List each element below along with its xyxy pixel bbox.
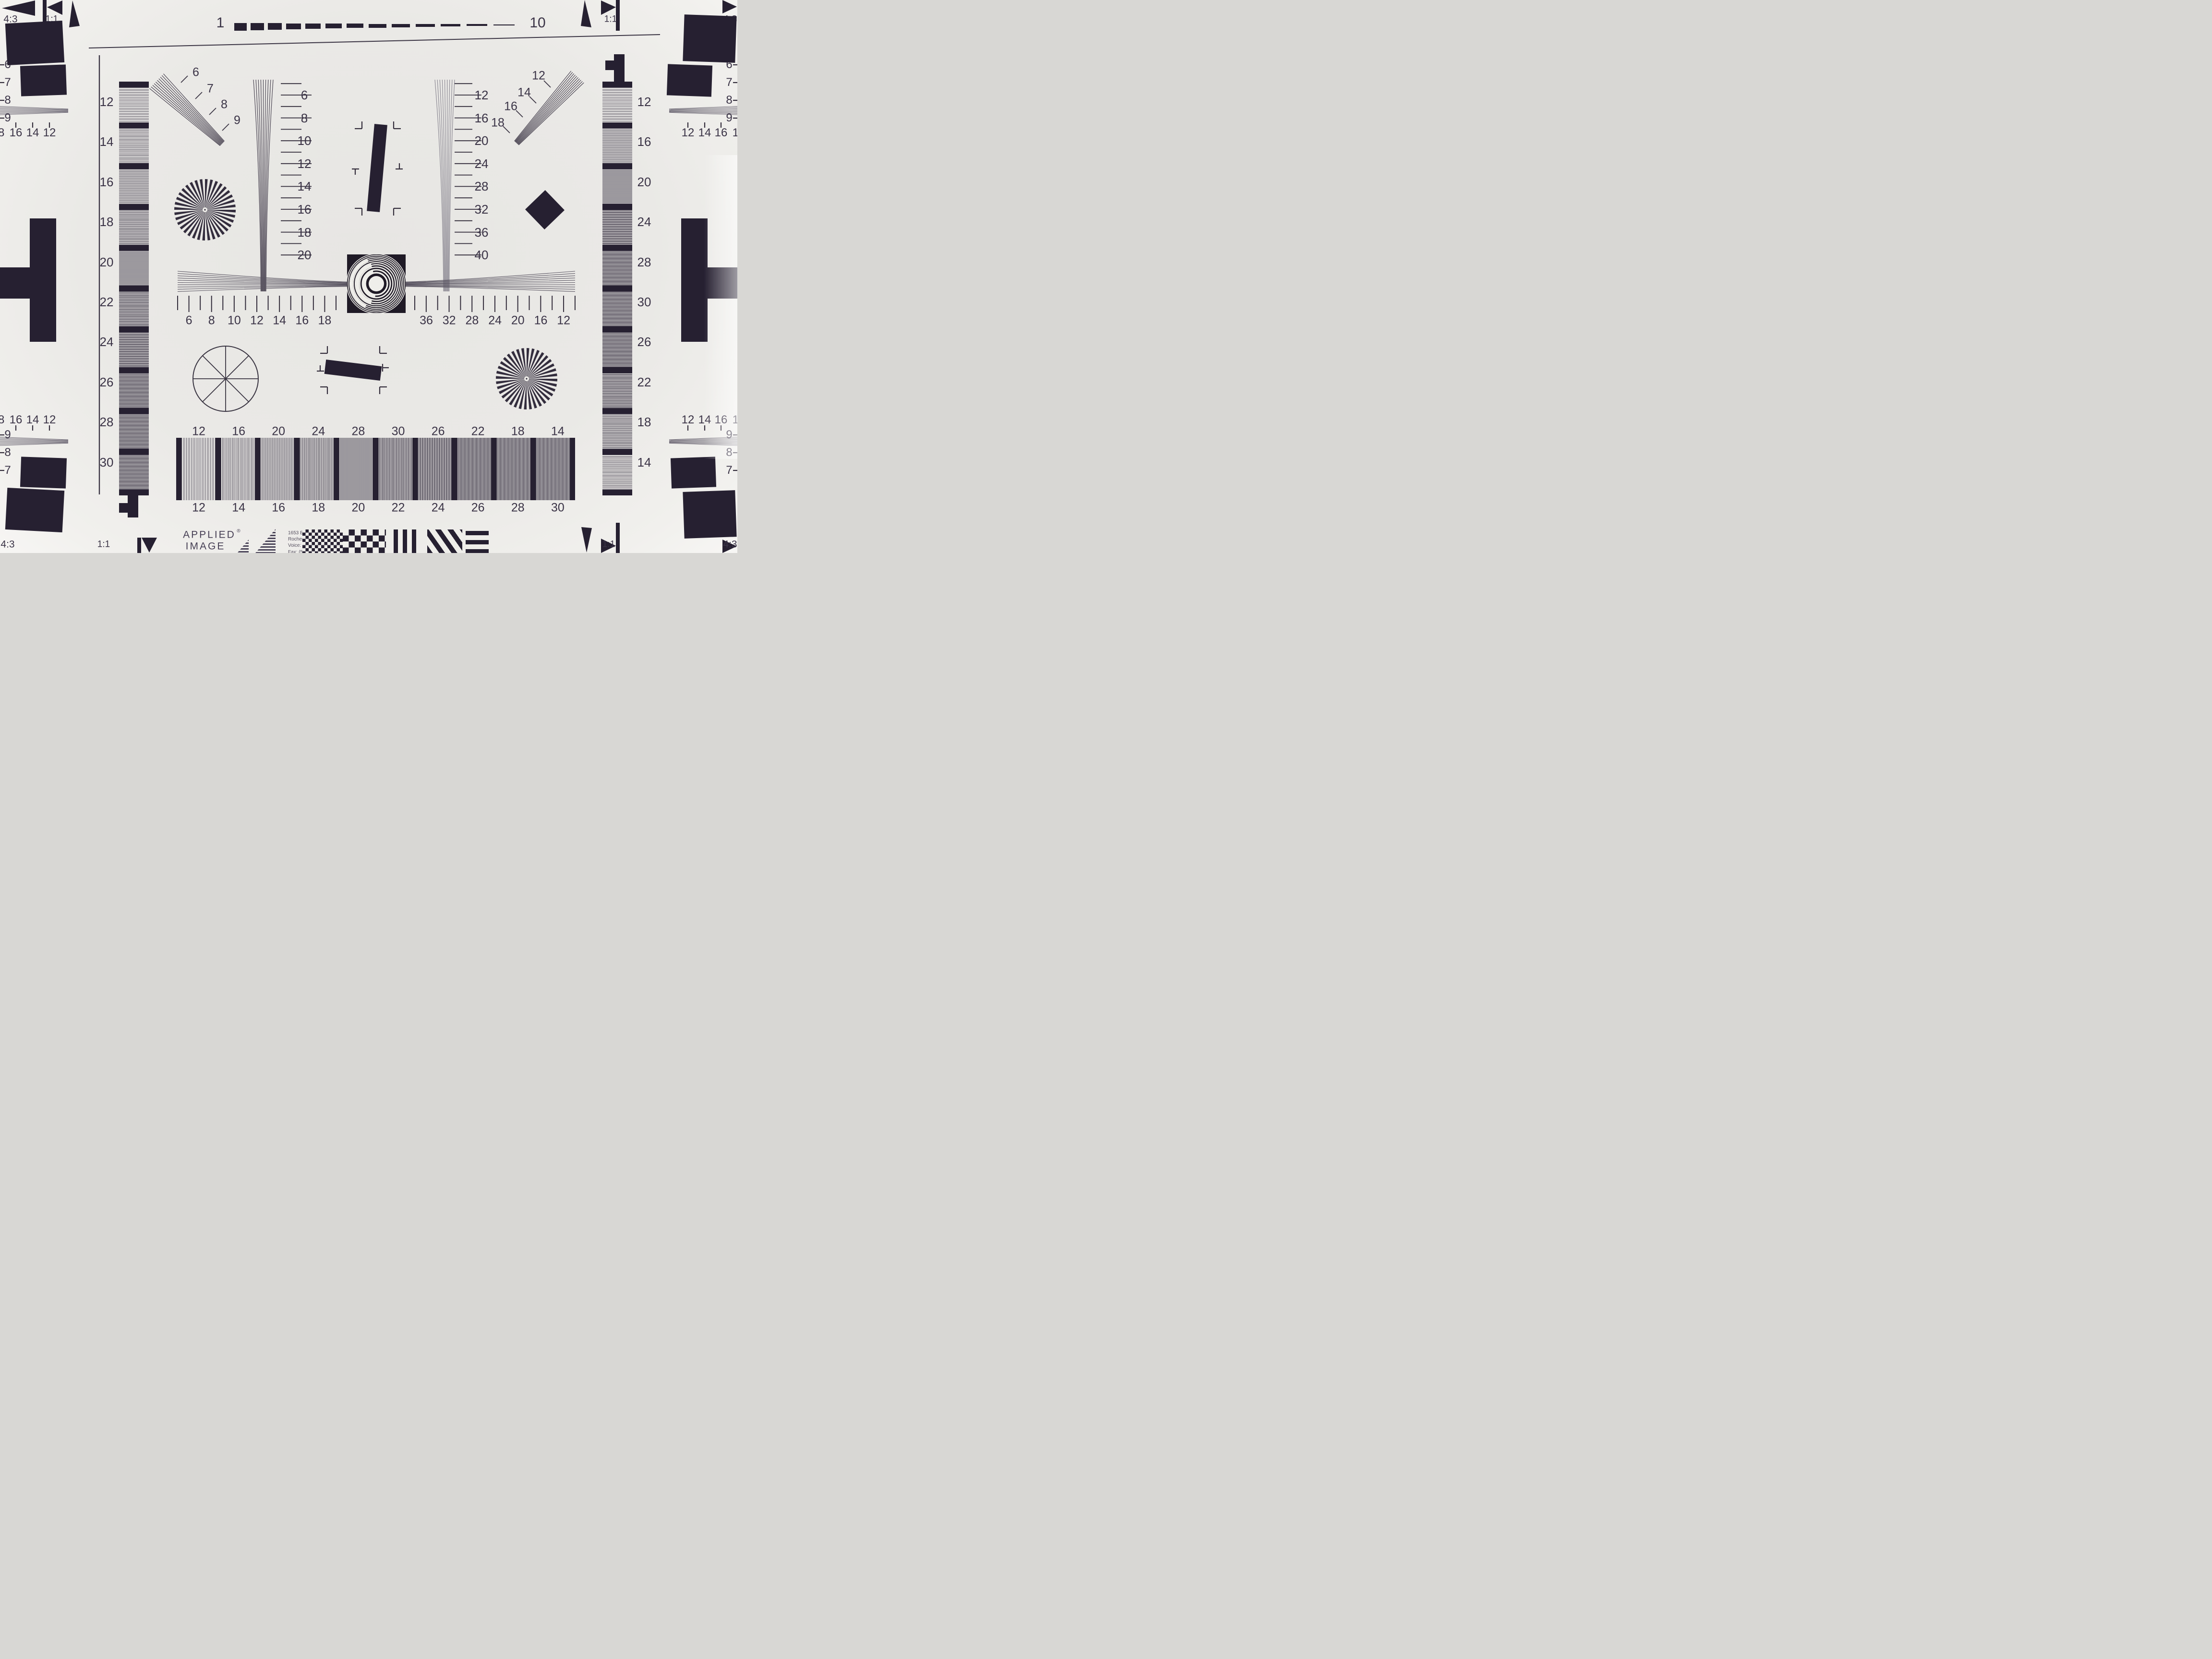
ring-center bbox=[369, 276, 384, 291]
strip-cell bbox=[602, 87, 632, 122]
h-scale-right-label: 12 bbox=[557, 315, 570, 327]
strip-cell bbox=[119, 373, 149, 408]
strip-divider bbox=[334, 438, 339, 500]
strip-cell bbox=[602, 251, 632, 286]
strip-divider bbox=[294, 438, 300, 500]
bottom-wedge-bottom-label: 24 bbox=[432, 502, 445, 514]
coarse-checkerboard-pattern bbox=[343, 529, 386, 553]
right-wedge-label: 12 bbox=[475, 89, 489, 101]
strip-cell bbox=[602, 291, 632, 326]
left-strip-label: 26 bbox=[100, 376, 114, 388]
edge-label: 8 bbox=[4, 447, 11, 458]
left-strip-label: 24 bbox=[100, 336, 114, 348]
right-strip-label: 14 bbox=[637, 456, 651, 469]
ruler-dash bbox=[251, 23, 264, 30]
strip-divider bbox=[119, 367, 149, 373]
strip-cell bbox=[602, 373, 632, 408]
left-arrow-icon bbox=[47, 0, 62, 15]
diagonal-bars-pattern bbox=[427, 529, 462, 553]
edge-label: 18 bbox=[0, 414, 4, 426]
right-grayscale-strip bbox=[602, 82, 632, 495]
right-wedge-label: 32 bbox=[475, 203, 489, 216]
left-t-shape-arm bbox=[0, 267, 30, 299]
ruler-dash bbox=[268, 23, 282, 30]
strip-cell bbox=[602, 210, 632, 245]
upper-right-fan-wedge bbox=[515, 72, 573, 142]
strip-cell bbox=[339, 438, 373, 500]
ruler-end-label: 10 bbox=[529, 16, 545, 30]
h-scale-right-label: 28 bbox=[465, 315, 479, 327]
left-strip-label: 22 bbox=[100, 296, 114, 308]
edge-label: 14 bbox=[26, 414, 39, 426]
ruler-dash bbox=[441, 24, 460, 26]
edge-label: 7 bbox=[726, 465, 732, 476]
ruler-dash bbox=[234, 23, 247, 31]
left-strip-label: 30 bbox=[100, 456, 114, 469]
strip-cell bbox=[418, 438, 452, 500]
bottom-wedge-top-label: 18 bbox=[511, 426, 525, 438]
strip-divider bbox=[119, 245, 149, 251]
right-strip-label: 12 bbox=[637, 96, 651, 108]
down-triangle-icon bbox=[142, 538, 157, 553]
fan-tick bbox=[195, 92, 202, 99]
bottom-grayscale-strip bbox=[176, 438, 575, 500]
ur-fan-label: 18 bbox=[491, 117, 505, 129]
edge-label: 14 bbox=[26, 127, 39, 139]
right-t-shape-arm bbox=[707, 267, 737, 299]
h-scale-left-label: 18 bbox=[318, 315, 332, 327]
strip-divider bbox=[119, 204, 149, 210]
strip-divider bbox=[491, 438, 496, 500]
strip-divider bbox=[119, 286, 149, 291]
edge-label: 18 bbox=[733, 414, 737, 426]
strip-cell bbox=[602, 332, 632, 367]
lower-right-starburst bbox=[524, 379, 527, 409]
h-scale-left-label: 6 bbox=[186, 315, 192, 327]
edge-label: 18 bbox=[733, 127, 737, 139]
up-triangle-icon bbox=[581, 0, 591, 27]
bottom-wedge-top-label: 28 bbox=[351, 426, 365, 438]
ur-fan-label: 16 bbox=[504, 101, 517, 113]
edge-label: 12 bbox=[682, 127, 695, 139]
marker-bar bbox=[137, 538, 141, 553]
strip-divider bbox=[119, 449, 149, 455]
right-arrow-icon bbox=[722, 0, 737, 13]
bottom-wedge-bottom-label: 30 bbox=[551, 502, 565, 514]
strip-divider bbox=[570, 438, 575, 500]
right-strip-label: 18 bbox=[637, 416, 651, 428]
edge-label: 9 bbox=[726, 429, 732, 441]
strip-divider bbox=[119, 490, 149, 495]
strip-divider bbox=[602, 204, 632, 210]
ul-fan-label: 7 bbox=[207, 83, 214, 95]
marker-bar bbox=[616, 523, 620, 553]
right-strip-label: 22 bbox=[637, 376, 651, 388]
strip-cell bbox=[119, 128, 149, 163]
vertical-bars-pattern bbox=[394, 529, 417, 553]
edge-label: 16 bbox=[10, 414, 23, 426]
down-triangle-icon bbox=[581, 527, 592, 553]
right-wedge-label: 24 bbox=[475, 157, 489, 170]
square-label-bottom-right: 1:1 bbox=[602, 540, 615, 549]
square-label-top-right: 1:1 bbox=[604, 15, 617, 24]
ruler-dash bbox=[416, 24, 435, 27]
strip-cell bbox=[119, 210, 149, 245]
ruler-start-label: 1 bbox=[216, 16, 225, 30]
strip-divider bbox=[216, 438, 221, 500]
edge-label: 12 bbox=[43, 414, 56, 426]
strip-divider bbox=[452, 438, 457, 500]
right-wedge-label: 20 bbox=[475, 134, 489, 147]
strip-divider bbox=[119, 163, 149, 169]
strip-cell bbox=[119, 291, 149, 326]
ul-fan-label: 6 bbox=[192, 67, 199, 79]
right-strip-label: 16 bbox=[637, 135, 651, 148]
right-wedge-label: 36 bbox=[475, 226, 489, 239]
edge-label: 16 bbox=[715, 414, 728, 426]
bottom-wedge-bottom-label: 14 bbox=[232, 502, 245, 514]
edge-label: 8 bbox=[726, 447, 732, 458]
ur-fan-label: 12 bbox=[532, 70, 545, 82]
lower-right-starburst-dot bbox=[526, 378, 527, 379]
strip-divider bbox=[602, 245, 632, 251]
ruler-dash bbox=[347, 24, 363, 28]
left-strip-label: 12 bbox=[100, 96, 114, 108]
h-scale-right-label: 24 bbox=[488, 315, 502, 327]
ruler-dash bbox=[325, 24, 342, 28]
bottom-wedge-top-label: 14 bbox=[551, 426, 565, 438]
bottom-wedge-bottom-label: 16 bbox=[272, 502, 285, 514]
strip-cell bbox=[119, 455, 149, 490]
edge-hatch bbox=[0, 110, 68, 110]
strip-divider bbox=[119, 326, 149, 332]
right-strip-label: 24 bbox=[637, 216, 651, 228]
upper-left-fan-wedge bbox=[163, 74, 224, 142]
edge-label: 12 bbox=[43, 127, 56, 139]
corner-square-bottom-left bbox=[5, 488, 64, 532]
edge-label: 14 bbox=[698, 414, 711, 426]
strip-divider bbox=[602, 367, 632, 373]
corner-square-bottom-right bbox=[683, 490, 736, 539]
edge-hatch bbox=[669, 110, 737, 110]
upper-right-fan-wedge bbox=[516, 73, 574, 142]
bottom-wedge-bottom-label: 26 bbox=[471, 502, 485, 514]
strip-cell bbox=[221, 438, 255, 500]
strip-divider bbox=[373, 438, 378, 500]
upper-left-starburst bbox=[202, 210, 205, 240]
h-scale-right-label: 20 bbox=[511, 315, 525, 327]
strip-cell bbox=[378, 438, 412, 500]
bottom-wedge-bottom-label: 12 bbox=[192, 502, 205, 514]
center-wedge-label: 14 bbox=[298, 180, 312, 192]
bottom-wedge-top-label: 22 bbox=[471, 426, 485, 438]
center-wedge-label: 8 bbox=[301, 112, 308, 124]
ratio-label-bottom-left: 4:3 bbox=[0, 540, 14, 550]
horizontal-wedge-line bbox=[406, 271, 575, 282]
strip-cell bbox=[119, 414, 149, 449]
h-scale-right-label: 36 bbox=[420, 315, 433, 327]
h-scale-left-label: 14 bbox=[273, 315, 286, 327]
upper-left-starburst bbox=[205, 179, 208, 210]
upper-right-fan-wedge bbox=[516, 75, 576, 143]
ul-fan-label: 8 bbox=[221, 99, 228, 111]
strip-cell bbox=[260, 438, 294, 500]
edge-label: 16 bbox=[10, 127, 23, 139]
strip-tab-arm bbox=[119, 503, 128, 513]
strip-divider bbox=[119, 82, 149, 87]
strip-divider bbox=[119, 408, 149, 414]
edge-label: 7 bbox=[4, 465, 11, 476]
h-scale-left-label: 16 bbox=[295, 315, 309, 327]
strip-divider bbox=[602, 163, 632, 169]
bottom-wedge-top-label: 12 bbox=[192, 426, 205, 438]
left-strip-label: 16 bbox=[100, 176, 114, 188]
center-wedge-label: 16 bbox=[298, 203, 312, 216]
h-scale-left-label: 8 bbox=[208, 315, 215, 327]
bottom-wedge-top-label: 16 bbox=[232, 426, 245, 438]
ruler-dash bbox=[392, 24, 410, 27]
upper-left-fan-wedge bbox=[150, 88, 220, 145]
strip-divider bbox=[602, 82, 632, 87]
fan-tick bbox=[181, 76, 188, 83]
center-wedge-label: 18 bbox=[298, 226, 312, 239]
bottom-wedge-bottom-label: 18 bbox=[312, 502, 325, 514]
logo-word-image: IMAGE bbox=[186, 541, 226, 552]
strip-cell bbox=[119, 169, 149, 204]
strip-cell bbox=[119, 87, 149, 122]
edge-label: 9 bbox=[4, 112, 11, 124]
logo-word-applied: APPLIED bbox=[183, 530, 236, 540]
strip-cell bbox=[496, 438, 530, 500]
strip-divider bbox=[602, 326, 632, 332]
bottom-wedge-top-label: 30 bbox=[392, 426, 405, 438]
strip-cell bbox=[536, 438, 570, 500]
strip-tab-arm bbox=[605, 60, 614, 70]
edge-square bbox=[671, 457, 716, 488]
strip-tab bbox=[128, 495, 138, 517]
right-wedge-label: 28 bbox=[475, 180, 489, 192]
strip-cell bbox=[602, 128, 632, 163]
edge-label: 8 bbox=[4, 95, 11, 106]
right-strip-label: 28 bbox=[637, 256, 651, 268]
square-label-bottom-left: 1:1 bbox=[97, 540, 110, 549]
edge-label: 9 bbox=[726, 112, 732, 124]
edge-square bbox=[20, 457, 67, 488]
ruler-dash bbox=[493, 24, 515, 25]
left-strip-label: 20 bbox=[100, 256, 114, 268]
registered-mark-icon: ® bbox=[237, 529, 240, 534]
strip-divider bbox=[602, 122, 632, 128]
fan-tick bbox=[222, 124, 229, 131]
strip-divider bbox=[602, 408, 632, 414]
lower-right-starburst bbox=[527, 379, 557, 382]
strip-cell bbox=[119, 332, 149, 367]
center-wedge-label: 12 bbox=[298, 157, 312, 170]
lower-right-starburst bbox=[527, 348, 529, 379]
ratio-label-bottom-right: 4:3 bbox=[723, 540, 737, 550]
diagonal-reference-line bbox=[89, 35, 660, 48]
left-grayscale-strip bbox=[119, 82, 149, 495]
bottom-wedge-top-label: 26 bbox=[432, 426, 445, 438]
center-wedge-label: 20 bbox=[298, 249, 312, 261]
strip-tab bbox=[614, 54, 625, 82]
resolution-test-chart: 4:3 1:1 1:1 4:3 4:3 1:1 1:1 4:3 1 10 121… bbox=[0, 0, 737, 553]
edge-label: 7 bbox=[4, 77, 11, 88]
bottom-wedge-bottom-label: 22 bbox=[392, 502, 405, 514]
ruler-dash bbox=[369, 24, 386, 28]
horizontal-bars-pattern bbox=[466, 529, 489, 553]
bottom-wedge-bottom-label: 28 bbox=[511, 502, 525, 514]
right-wedge-label: 16 bbox=[475, 112, 489, 124]
ul-fan-label: 9 bbox=[234, 115, 240, 127]
upper-left-fan-wedge bbox=[151, 87, 221, 145]
up-triangle-icon bbox=[69, 0, 80, 27]
upper-left-starburst bbox=[174, 207, 205, 210]
left-strip-label: 28 bbox=[100, 416, 114, 428]
strip-divider bbox=[602, 490, 632, 495]
center-wedge-label: 10 bbox=[298, 134, 312, 147]
upper-left-starburst-dot bbox=[204, 209, 205, 210]
right-strip-label: 30 bbox=[637, 296, 651, 308]
strip-cell bbox=[300, 438, 334, 500]
edge-label: 16 bbox=[715, 127, 728, 139]
ruler-dash bbox=[467, 24, 487, 25]
right-t-shape-vertical bbox=[681, 218, 708, 342]
strip-divider bbox=[602, 449, 632, 455]
edge-label: 9 bbox=[4, 429, 11, 441]
right-wedge-label: 40 bbox=[475, 249, 489, 261]
center-wedge-label: 6 bbox=[301, 89, 308, 101]
left-strip-label: 18 bbox=[100, 216, 114, 228]
h-scale-right-label: 32 bbox=[443, 315, 456, 327]
left-strip-label: 14 bbox=[100, 135, 114, 148]
edge-label: 7 bbox=[726, 77, 732, 88]
strip-cell bbox=[602, 169, 632, 204]
h-scale-left-label: 12 bbox=[250, 315, 264, 327]
corner-square-top-right bbox=[683, 14, 736, 63]
corner-square-top-left bbox=[5, 21, 64, 65]
strip-divider bbox=[255, 438, 260, 500]
left-t-shape-vertical bbox=[30, 218, 56, 342]
strip-divider bbox=[119, 122, 149, 128]
funnel-wedge-line bbox=[449, 80, 455, 291]
strip-divider bbox=[530, 438, 536, 500]
bottom-wedge-bottom-label: 20 bbox=[351, 502, 365, 514]
h-scale-left-label: 10 bbox=[228, 315, 241, 327]
strip-divider bbox=[412, 438, 418, 500]
strip-cell bbox=[119, 251, 149, 286]
edge-square bbox=[20, 64, 67, 96]
h-scale-right-label: 16 bbox=[534, 315, 548, 327]
right-strip-label: 26 bbox=[637, 336, 651, 348]
ruler-dash bbox=[305, 24, 321, 29]
strip-divider bbox=[602, 286, 632, 291]
edge-label: 14 bbox=[698, 127, 711, 139]
edge-label: 12 bbox=[682, 414, 695, 426]
logo-word-inc: Inc bbox=[186, 553, 201, 553]
strip-cell bbox=[602, 455, 632, 490]
strip-cell bbox=[457, 438, 491, 500]
bottom-wedge-top-label: 20 bbox=[272, 426, 285, 438]
edge-square bbox=[667, 64, 712, 96]
edge-label: 8 bbox=[726, 95, 732, 106]
ur-fan-label: 14 bbox=[517, 87, 531, 99]
fan-tick bbox=[209, 108, 216, 115]
right-strip-label: 20 bbox=[637, 176, 651, 188]
strip-cell bbox=[602, 414, 632, 449]
lower-right-starburst bbox=[496, 376, 527, 379]
right-arrow-icon bbox=[601, 0, 616, 15]
strip-divider bbox=[176, 438, 181, 500]
strip-cell bbox=[181, 438, 216, 500]
upper-left-fan-wedge bbox=[162, 75, 224, 142]
fine-checkerboard-pattern bbox=[302, 529, 343, 553]
edge-label: 18 bbox=[0, 127, 4, 139]
upper-left-starburst bbox=[205, 210, 236, 213]
ruler-dash bbox=[286, 24, 301, 30]
bottom-wedge-top-label: 24 bbox=[312, 426, 325, 438]
